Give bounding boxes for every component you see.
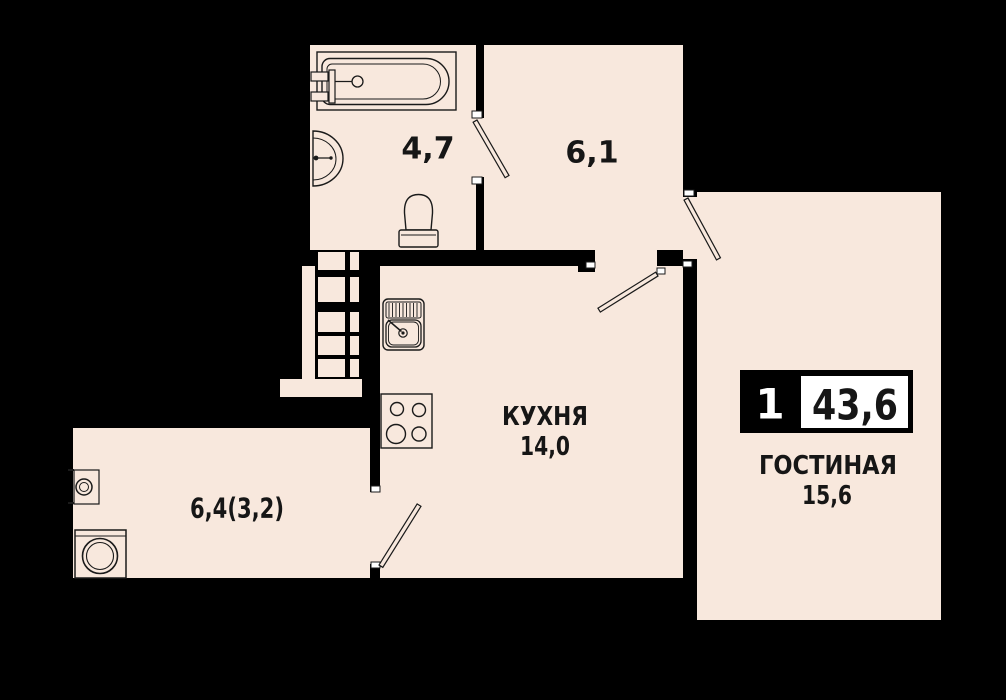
hallway-area-label: 6,1 xyxy=(565,136,618,171)
jamb-cap xyxy=(684,190,694,196)
jamb-cap xyxy=(472,177,482,184)
kitchen-name-label: КУХНЯ xyxy=(502,402,588,432)
wall-hall-kitchen-stub xyxy=(657,250,683,266)
jamb-cap xyxy=(472,111,482,118)
balcony-door-opening xyxy=(370,492,380,564)
badge-total-area: 43,6 xyxy=(812,381,898,430)
living-name-label: ГОСТИНАЯ xyxy=(759,451,897,481)
bathroom-area-label: 4,7 xyxy=(401,132,454,167)
jamb-cap xyxy=(586,262,595,268)
stove-icon xyxy=(381,394,432,448)
floor-plan: 1 43,6 4,7 6,1 КУХНЯ 14,0 ГОСТИНАЯ 15,6 … xyxy=(0,0,1006,700)
badge-room-count: 1 xyxy=(755,380,784,429)
bathtub-icon xyxy=(311,52,456,110)
kitchen-area-label: 14,0 xyxy=(520,432,570,462)
floor-plan-canvas: 1 43,6 4,7 6,1 КУХНЯ 14,0 ГОСТИНАЯ 15,6 … xyxy=(0,0,1006,700)
kitchen-sink-icon xyxy=(383,299,424,350)
jamb-cap xyxy=(683,261,692,267)
jamb-cap xyxy=(657,268,665,274)
balcony-area-label: 6,4(3,2) xyxy=(190,492,284,525)
washing-machine-icon xyxy=(75,530,126,578)
living-area-label: 15,6 xyxy=(802,481,852,511)
area-badge: 1 43,6 xyxy=(740,370,913,433)
jamb-cap xyxy=(371,486,380,492)
